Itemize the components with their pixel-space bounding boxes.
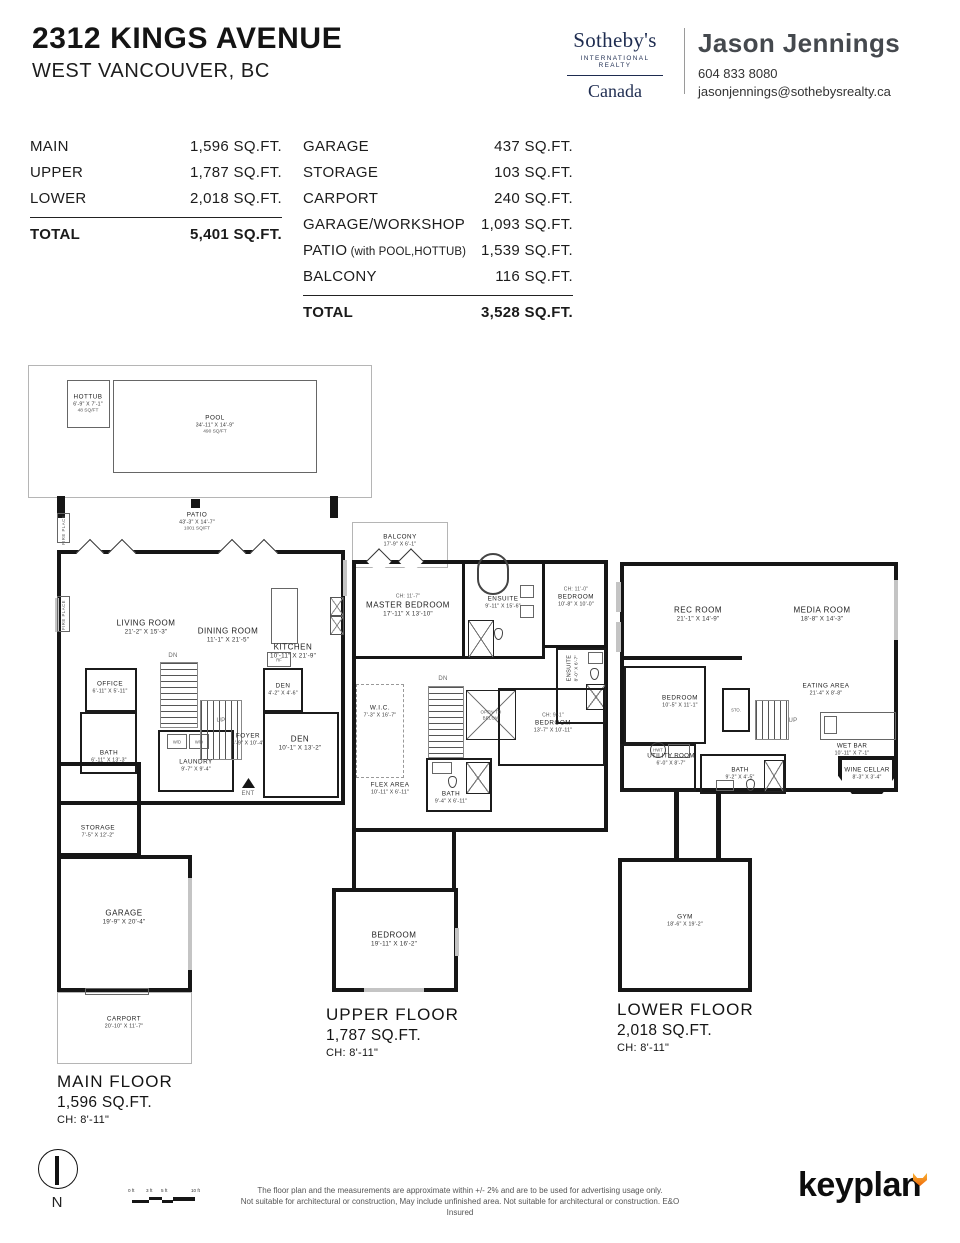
floor-plan-page: 2312 KINGS AVENUE WEST VANCOUVER, BC Sot… xyxy=(0,0,960,1243)
brand-name: Sotheby's xyxy=(563,28,667,53)
main-plan-feature xyxy=(85,988,149,995)
upper-room-open_below-nm: OPEN TO BELOW xyxy=(472,709,510,720)
upper-room-label-bedroom_s: BEDROOM19'-11" X 16'-2" xyxy=(371,931,417,950)
upper-room-ensuite-nm: ENSUITE xyxy=(485,596,520,604)
main-room-living-nm: LIVING ROOM xyxy=(117,619,176,629)
upper-plan-feature xyxy=(520,585,534,598)
upper-room-wic-nm: W.I.C. xyxy=(364,705,397,713)
main-room-label-laundry: LAUNDRY9'-7" X 9'-4" xyxy=(179,759,212,774)
main-room-label-wd2: W/D xyxy=(195,739,203,744)
upper-room-flex-dm: 10'-11" X 6'-11" xyxy=(371,790,410,797)
main-plan-feature xyxy=(200,700,242,760)
main-room-label-carport: CARPORT20'-10" X 11'-7" xyxy=(105,1016,143,1031)
main-plan-window xyxy=(343,560,347,596)
scale-label: 0 ft xyxy=(128,1188,134,1193)
main-room-up-nm: UP xyxy=(217,718,226,726)
main-room-label-pool: POOL34'-11" X 14'-9"490 SQ/FT xyxy=(196,414,234,435)
main-room-label-wd1: W/D xyxy=(173,739,181,744)
upper-floor-title: UPPER FLOOR1,787 SQ.FT.CH: 8'-11" xyxy=(326,1005,459,1059)
main-room-label-ent: ENT xyxy=(242,791,255,799)
upper-plan-wall xyxy=(452,832,456,888)
main-room-bath-nm: BATH xyxy=(91,750,126,758)
page-title: 2312 KINGS AVENUE xyxy=(32,22,342,56)
main-room-label-dining: DINING ROOM11'-1" X 21'-5" xyxy=(198,627,259,646)
lower-room-bedroom-nm: BEDROOM xyxy=(662,695,698,703)
lower-room-label-rec: REC ROOM21'-1" X 14'-9" xyxy=(674,606,722,625)
main-room-label-patio: PATIO43'-3" X 14'-7"1001 SQ/FT xyxy=(179,511,215,532)
total-label: TOTAL xyxy=(303,304,353,321)
lower-room-wine-nm: WINE CELLAR xyxy=(844,767,889,775)
lower-plan-window xyxy=(616,582,621,612)
main-floor-title-t2: 1,596 SQ.FT. xyxy=(57,1094,173,1112)
lower-room-label-eating: EATING AREA21'-4" X 8'-8" xyxy=(802,683,849,698)
disclaimer: The floor plan and the measurements are … xyxy=(240,1186,680,1218)
lower-room-wetbar-nm: WET BAR xyxy=(835,743,870,751)
upper-plan-wall xyxy=(542,560,545,658)
disclaimer-line: The floor plan and the measurements are … xyxy=(240,1186,680,1197)
lower-plan-feature xyxy=(764,760,784,792)
lower-room-media-nm: MEDIA ROOM xyxy=(793,606,850,616)
main-room-foyer-nm: FOYER xyxy=(232,733,265,741)
area-value: 240 SQ.FT. xyxy=(494,190,573,207)
upper-plan-feature xyxy=(588,652,603,664)
main-room-wd2-nm: W/D xyxy=(195,739,203,744)
upper-room-label-bedroom_mid: CH: 9'-1"BEDROOM13'-7" X 10'-11" xyxy=(534,712,572,733)
main-room-dn-nm: DN xyxy=(168,653,177,661)
upper-room-wic-dm: 7'-3" X 16'-7" xyxy=(364,713,397,720)
brand-region: Canada xyxy=(563,81,667,102)
main-room-rf-nm: RF xyxy=(276,657,282,662)
area-label: CARPORT xyxy=(303,190,378,207)
sothebys-logo: Sotheby's INTERNATIONAL REALTY Canada xyxy=(563,28,667,102)
main-room-laundry-nm: LAUNDRY xyxy=(179,759,212,767)
upper-room-bedroom_mid-dm: 13'-7" X 10'-11" xyxy=(534,727,572,734)
lower-room-label-utility: UTILITY ROOM6'-0" X 8'-7" xyxy=(647,753,695,768)
upper-room-master-nm: MASTER BEDROOM xyxy=(366,600,450,610)
lower-room-utility-nm: UTILITY ROOM xyxy=(647,753,695,761)
upper-plan-feature xyxy=(356,684,404,778)
area-label: PATIO (with POOL,HOTTUB) xyxy=(303,242,466,259)
upper-plan-wall xyxy=(352,656,545,659)
main-room-den-nm: DEN xyxy=(279,735,322,745)
upper-plan-wall xyxy=(352,832,356,888)
main-plan-feature xyxy=(263,712,339,798)
lower-room-eating-nm: EATING AREA xyxy=(802,683,849,691)
upper-plan-window xyxy=(455,928,459,956)
main-room-carport-nm: CARPORT xyxy=(105,1016,143,1024)
lower-room-media-dm: 18'-8" X 14'-3" xyxy=(793,616,850,624)
area-value: 103 SQ.FT. xyxy=(494,164,573,181)
agent-name: Jason Jennings xyxy=(698,28,900,59)
main-plan-wall xyxy=(330,496,338,518)
main-room-fp1-nm: FIRE PLACE xyxy=(61,515,67,545)
scale-bar-segment xyxy=(132,1200,149,1203)
area-label: BALCONY xyxy=(303,268,377,285)
lower-room-label-gym: GYM18'-6" X 19'-2" xyxy=(667,914,703,929)
agent-email: jasonjennings@sothebysrealty.ca xyxy=(698,84,900,99)
upper-plan-feature xyxy=(428,686,464,758)
upper-floor-title-t2: 1,787 SQ.FT. xyxy=(326,1027,459,1045)
upper-plan-feature xyxy=(466,762,490,794)
main-room-bath-dm: 6'-11" X 13'-3" xyxy=(91,758,126,765)
area-value: 2,018 SQ.FT. xyxy=(190,190,282,207)
agent-phone: 604 833 8080 xyxy=(698,66,900,81)
lower-room-label-bath: BATH9'-2" X 4'-5" xyxy=(725,767,754,782)
main-room-patio-sb: 1001 SQ/FT xyxy=(179,526,215,532)
area-label: UPPER xyxy=(30,164,83,181)
upper-room-label-master: CH: 11'-7"MASTER BEDROOM17'-11" X 13'-10… xyxy=(366,593,450,618)
lower-plan-feature xyxy=(716,780,734,791)
area-row: UPPER1,787 SQ.FT. xyxy=(30,164,282,190)
main-room-fp2-nm: FIRE PLACE xyxy=(61,600,67,630)
main-room-label-garage: GARAGE19'-9" X 20'-4" xyxy=(103,909,146,928)
main-room-storage-dm: 7'-5" X 12'-2" xyxy=(81,833,115,840)
main-plan-feature xyxy=(57,762,141,857)
brand-tagline: INTERNATIONAL REALTY xyxy=(563,55,667,69)
upper-room-bedroom_mid-nm: BEDROOM xyxy=(534,719,572,727)
main-room-living-dm: 21'-2" X 15'-3" xyxy=(117,629,176,637)
main-room-den_small-dm: 4'-2" X 4'-6" xyxy=(268,691,298,698)
area-label: LOWER xyxy=(30,190,87,207)
lower-room-bath-nm: BATH xyxy=(725,767,754,775)
upper-plan-window xyxy=(364,988,424,992)
total-label: TOTAL xyxy=(30,226,80,243)
main-room-label-living: LIVING ROOM21'-2" X 15'-3" xyxy=(117,619,176,638)
lower-plan-wall xyxy=(620,656,742,660)
upper-room-master-dm: 17'-11" X 13'-10" xyxy=(366,610,450,618)
lower-room-gym-nm: GYM xyxy=(667,914,703,922)
lower-plan-feature xyxy=(755,700,789,740)
main-room-label-office: OFFICE6'-11" X 5'-11" xyxy=(93,681,128,696)
lower-room-rec-dm: 21'-1" X 14'-9" xyxy=(674,616,722,624)
area-row: GARAGE437 SQ.FT. xyxy=(303,138,573,164)
lower-plan-wall xyxy=(674,792,679,860)
total-value: 3,528 SQ.FT. xyxy=(481,304,573,321)
area-value: 437 SQ.FT. xyxy=(494,138,573,155)
main-room-storage-nm: STORAGE xyxy=(81,825,115,833)
main-room-label-fp2: FIRE PLACE xyxy=(61,600,67,630)
scale-bar-segment xyxy=(149,1197,162,1200)
lower-room-label-hwt: HWT xyxy=(653,747,663,752)
scale-label: 10 ft xyxy=(191,1188,200,1193)
main-room-office-nm: OFFICE xyxy=(93,681,128,689)
main-room-carport-dm: 20'-10" X 11'-7" xyxy=(105,1024,143,1031)
upper-floor-title-t1: UPPER FLOOR xyxy=(326,1005,459,1025)
brand-rule xyxy=(567,75,663,76)
main-room-den_small-nm: DEN xyxy=(268,683,298,691)
upper-room-bath-nm: BATH xyxy=(435,791,467,799)
area-table-interior: MAIN1,596 SQ.FT.UPPER1,787 SQ.FT.LOWER2,… xyxy=(30,138,282,256)
lower-room-gym-dm: 18'-6" X 19'-2" xyxy=(667,922,703,929)
main-room-patio-nm: PATIO xyxy=(179,511,215,519)
main-room-hottub-nm: HOTTUB xyxy=(73,393,103,401)
upper-room-label-ensuite2: ENSUITE8'-0" X 6'-7" xyxy=(566,655,579,682)
main-room-hottub-sb: 48 SQ/FT xyxy=(73,408,103,414)
lower-room-label-sto: STO. xyxy=(731,707,741,712)
upper-room-flex-nm: FLEX AREA xyxy=(371,782,410,790)
area-label-note: (with POOL,HOTTUB) xyxy=(347,246,466,258)
lower-room-label-bedroom: BEDROOM10'-5" X 11'-1" xyxy=(662,695,698,710)
main-room-label-storage: STORAGE7'-5" X 12'-2" xyxy=(81,825,115,840)
area-row: LOWER2,018 SQ.FT. xyxy=(30,190,282,216)
main-room-label-fp1: FIRE PLACE xyxy=(61,515,67,545)
upper-room-label-bath: BATH9'-4" X 6'-11" xyxy=(435,791,467,806)
main-plan-feature xyxy=(330,616,344,635)
lower-plan-window xyxy=(616,622,621,652)
upper-plan-feature xyxy=(468,620,494,658)
upper-room-bedroom_s-dm: 19'-11" X 16'-2" xyxy=(371,941,417,949)
lower-room-bath-dm: 9'-2" X 4'-5" xyxy=(725,775,754,782)
area-label: STORAGE xyxy=(303,164,378,181)
main-floor-title-t1: MAIN FLOOR xyxy=(57,1072,173,1092)
lower-plan-feature xyxy=(824,716,837,734)
upper-room-balcony-nm: BALCONY xyxy=(383,534,417,542)
main-room-label-up: UP xyxy=(217,718,226,726)
main-room-label-den_small: DEN4'-2" X 4'-6" xyxy=(268,683,298,698)
area-value: 1,539 SQ.FT. xyxy=(481,242,573,259)
main-room-garage-nm: GARAGE xyxy=(103,909,146,919)
upper-room-label-wic: W.I.C.7'-3" X 16'-7" xyxy=(364,705,397,720)
area-row: CARPORT240 SQ.FT. xyxy=(303,190,573,216)
lower-room-sto-nm: STO. xyxy=(731,707,741,712)
main-room-label-bath: BATH6'-11" X 13'-3" xyxy=(91,750,126,765)
area-total-row: TOTAL3,528 SQ.FT. xyxy=(303,296,573,334)
main-room-label-dn: DN xyxy=(168,653,177,661)
lower-floor-title: LOWER FLOOR2,018 SQ.FT.CH: 8'-11" xyxy=(617,1000,754,1054)
upper-plan-wall xyxy=(462,560,465,658)
upper-room-ensuite-dm: 9'-11" X 15'-6" xyxy=(485,604,520,611)
lower-plan-wall xyxy=(716,792,721,860)
main-floor-title: MAIN FLOOR1,596 SQ.FT.CH: 8'-11" xyxy=(57,1072,173,1126)
upper-room-label-open_below: OPEN TO BELOW xyxy=(472,709,510,720)
main-plan-window xyxy=(188,878,192,970)
area-row: MAIN1,596 SQ.FT. xyxy=(30,138,282,164)
upper-room-label-dn: DN xyxy=(438,676,447,684)
upper-room-bath-dm: 9'-4" X 6'-11" xyxy=(435,799,467,806)
area-value: 1,787 SQ.FT. xyxy=(190,164,282,181)
area-table-exterior: GARAGE437 SQ.FT.STORAGE103 SQ.FT.CARPORT… xyxy=(303,138,573,334)
main-floor-title-t3: CH: 8'-11" xyxy=(57,1114,173,1126)
lower-room-wine-dm: 8'-3" X 3'-4" xyxy=(844,775,889,782)
scale-bar-segment xyxy=(162,1200,173,1203)
lower-room-up-nm: UP xyxy=(789,718,798,726)
upper-floor-title-t3: CH: 8'-11" xyxy=(326,1047,459,1059)
area-value: 116 SQ.FT. xyxy=(495,268,573,285)
lower-room-label-wine: WINE CELLAR8'-3" X 3'-4" xyxy=(844,767,889,782)
area-total-row: TOTAL5,401 SQ.FT. xyxy=(30,218,282,256)
upper-room-label-bedroom_ne: CH: 11'-0"BEDROOM10'-8" X 10'-0" xyxy=(558,586,594,607)
upper-room-label-flex: FLEX AREA10'-11" X 6'-11" xyxy=(371,782,410,797)
lower-floor-title-t2: 2,018 SQ.FT. xyxy=(617,1022,754,1040)
main-room-garage-dm: 19'-9" X 20'-4" xyxy=(103,919,146,927)
keyplan-logo: keyplan xyxy=(798,1166,921,1205)
main-room-pool-nm: POOL xyxy=(196,414,234,422)
upper-room-balcony-dm: 17'-9" X 6'-1" xyxy=(383,542,417,549)
area-label: GARAGE xyxy=(303,138,369,155)
lower-room-eating-dm: 21'-4" X 8'-8" xyxy=(802,691,849,698)
header-divider xyxy=(684,28,685,94)
main-room-ent-nm: ENT xyxy=(242,791,255,799)
upper-room-bedroom_ne-nm: BEDROOM xyxy=(558,593,594,601)
main-room-pool-sb: 490 SQ/FT xyxy=(196,429,234,435)
main-room-label-rf: RF xyxy=(276,657,282,662)
main-room-label-foyer: FOYER6'-9" X 10'-4" xyxy=(232,733,265,748)
upper-plan-feature xyxy=(477,553,509,595)
main-room-label-hottub: HOTTUB6'-9" X 7'-1"48 SQ/FT xyxy=(73,393,103,414)
upper-plan-feature xyxy=(520,605,534,618)
page-subtitle: WEST VANCOUVER, BC xyxy=(32,60,342,83)
main-room-foyer-dm: 6'-9" X 10'-4" xyxy=(232,741,265,748)
area-row: PATIO (with POOL,HOTTUB)1,539 SQ.FT. xyxy=(303,242,573,268)
main-room-wd1-nm: W/D xyxy=(173,739,181,744)
lower-room-rec-nm: REC ROOM xyxy=(674,606,722,616)
upper-room-label-balcony: BALCONY17'-9" X 6'-1" xyxy=(383,534,417,549)
main-room-office-dm: 6'-11" X 5'-11" xyxy=(93,689,128,696)
lower-floor-title-t1: LOWER FLOOR xyxy=(617,1000,754,1020)
lower-plan-window xyxy=(894,580,898,640)
main-room-hottub-dm: 6'-9" X 7'-1" xyxy=(73,402,103,409)
area-value: 1,596 SQ.FT. xyxy=(190,138,282,155)
main-room-label-den: DEN10'-1" X 13'-2" xyxy=(279,735,322,754)
lower-floor-title-t3: CH: 8'-11" xyxy=(617,1042,754,1054)
area-value: 1,093 SQ.FT. xyxy=(481,216,573,233)
upper-room-label-ensuite: ENSUITE9'-11" X 15'-6" xyxy=(485,596,520,611)
upper-room-bedroom_ne-dm: 10'-8" X 10'-0" xyxy=(558,601,594,608)
main-room-pool-dm: 34'-11" X 14'-9" xyxy=(196,423,234,430)
upper-room-bedroom_s-nm: BEDROOM xyxy=(371,931,417,941)
scale-label: 3 ft xyxy=(146,1188,152,1193)
upper-room-ensuite2-nm: ENSUITE xyxy=(566,655,573,682)
main-plan-feature xyxy=(271,588,298,644)
main-room-patio-dm: 43'-3" X 14'-7" xyxy=(179,520,215,527)
main-plan-feature xyxy=(330,597,344,616)
area-row: STORAGE103 SQ.FT. xyxy=(303,164,573,190)
lower-room-utility-dm: 6'-0" X 8'-7" xyxy=(647,761,695,768)
lower-room-label-wetbar: WET BAR10'-11" X 7'-1" xyxy=(835,743,870,758)
total-value: 5,401 SQ.FT. xyxy=(190,226,282,243)
disclaimer-line: Not suitable for architectural or constr… xyxy=(240,1197,680,1219)
lower-room-label-up: UP xyxy=(789,718,798,726)
main-room-kitchen-nm: KITCHEN xyxy=(270,643,316,653)
lower-room-label-media: MEDIA ROOM18'-8" X 14'-3" xyxy=(793,606,850,625)
area-row: GARAGE/WORKSHOP1,093 SQ.FT. xyxy=(303,216,573,242)
lower-room-wetbar-dm: 10'-11" X 7'-1" xyxy=(835,751,870,758)
main-plan-feature xyxy=(160,662,198,728)
lower-room-hwt-nm: HWT xyxy=(653,747,663,752)
area-label: GARAGE/WORKSHOP xyxy=(303,216,465,233)
upper-plan-feature xyxy=(432,762,452,774)
upper-room-dn-nm: DN xyxy=(438,676,447,684)
area-label: MAIN xyxy=(30,138,69,155)
main-plan-wall xyxy=(191,499,200,508)
compass-needle xyxy=(55,1156,59,1185)
main-room-dining-dm: 11'-1" X 21'-5" xyxy=(198,637,259,645)
main-room-laundry-dm: 9'-7" X 9'-4" xyxy=(179,767,212,774)
compass-north-label: N xyxy=(49,1194,65,1211)
main-room-den-dm: 10'-1" X 13'-2" xyxy=(279,745,322,753)
main-room-dining-nm: DINING ROOM xyxy=(198,627,259,637)
upper-room-ensuite2-dm: 8'-0" X 6'-7" xyxy=(574,655,580,682)
agent-card: Jason Jennings 604 833 8080 jasonjenning… xyxy=(698,28,900,99)
scale-label: 5 ft xyxy=(161,1188,167,1193)
area-row: BALCONY116 SQ.FT. xyxy=(303,268,573,294)
header: 2312 KINGS AVENUE WEST VANCOUVER, BC xyxy=(32,22,342,83)
lower-room-bedroom-dm: 10'-5" X 11'-1" xyxy=(662,703,698,710)
scale-bar-segment xyxy=(173,1197,195,1201)
